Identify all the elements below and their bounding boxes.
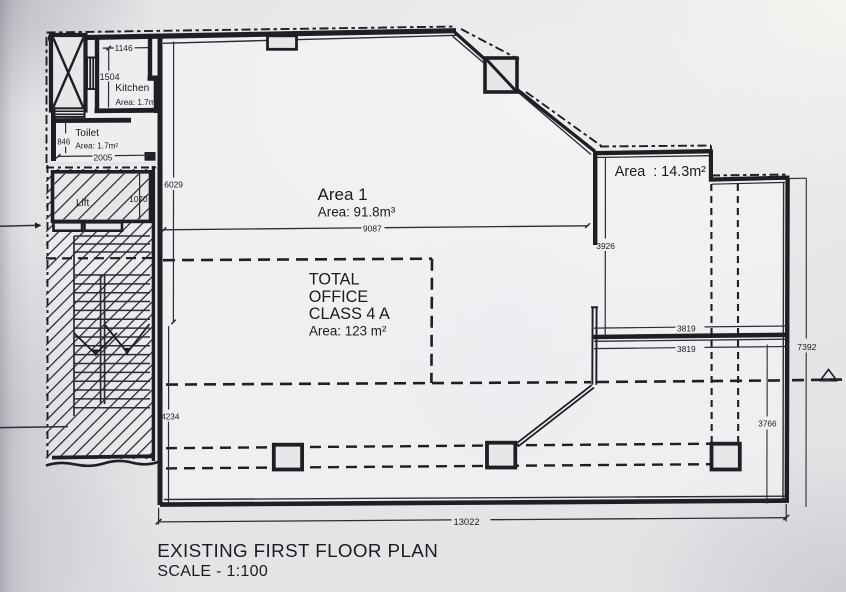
svg-text:OFFICE: OFFICE [309, 288, 369, 306]
svg-text:Area 1: Area 1 [318, 185, 368, 204]
svg-text:6029: 6029 [164, 179, 183, 189]
svg-text:1504: 1504 [100, 72, 120, 82]
svg-text:846: 846 [57, 138, 70, 147]
svg-text:SCALE - 1:100: SCALE - 1:100 [157, 563, 268, 580]
svg-text:Area: 1.7m²: Area: 1.7m² [116, 98, 159, 107]
svg-text:3819: 3819 [677, 344, 696, 354]
svg-text:Area : 14.3m²: Area : 14.3m² [615, 164, 706, 180]
svg-text:13022: 13022 [454, 516, 480, 527]
svg-text:2005: 2005 [93, 153, 112, 163]
svg-text:7392: 7392 [797, 342, 816, 352]
svg-text:3766: 3766 [758, 420, 777, 429]
svg-text:3819: 3819 [677, 323, 696, 333]
svg-text:9087: 9087 [363, 224, 382, 234]
svg-text:1146: 1146 [115, 43, 133, 53]
svg-text:Lift: Lift [76, 198, 90, 209]
svg-text:Kitchen: Kitchen [115, 83, 149, 94]
svg-text:4234: 4234 [161, 412, 180, 421]
svg-text:EXISTING FIRST FLOOR PLAN: EXISTING FIRST FLOOR PLAN [157, 540, 438, 561]
svg-text:TOTAL: TOTAL [309, 271, 360, 289]
svg-text:Area: 91.8m³: Area: 91.8m³ [318, 205, 396, 220]
svg-text:CLASS 4 A: CLASS 4 A [309, 305, 390, 323]
svg-text:3926: 3926 [596, 241, 615, 251]
svg-text:Toilet: Toilet [75, 128, 99, 139]
svg-text:1070: 1070 [129, 195, 148, 204]
svg-text:Area: 123 m²: Area: 123 m² [309, 324, 387, 339]
svg-text:Area: 1.7m²: Area: 1.7m² [75, 141, 118, 150]
